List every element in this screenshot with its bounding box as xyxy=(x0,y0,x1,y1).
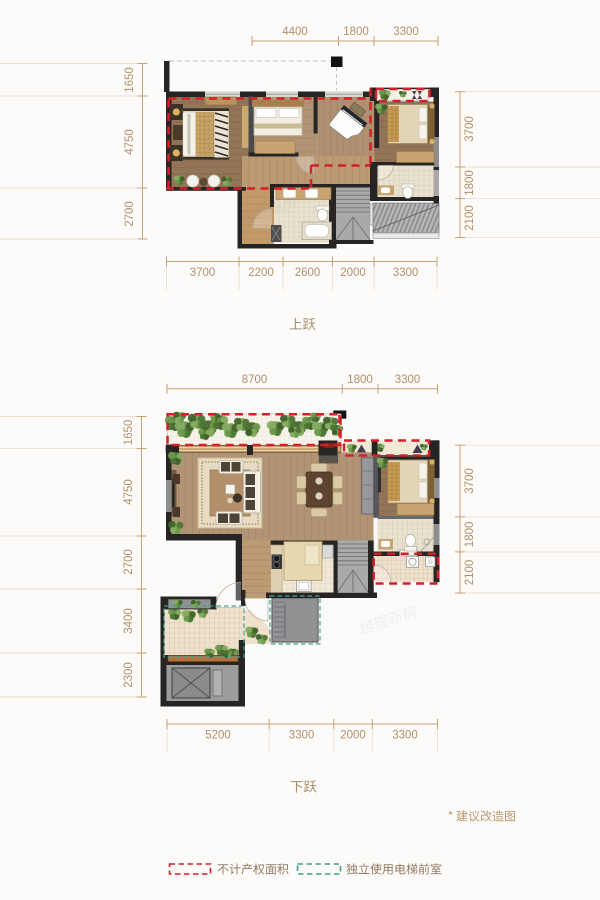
svg-text:4750: 4750 xyxy=(123,479,135,505)
svg-text:4400: 4400 xyxy=(282,26,308,38)
svg-text:3300: 3300 xyxy=(395,374,421,386)
svg-text:3300: 3300 xyxy=(289,730,315,742)
svg-text:8700: 8700 xyxy=(242,374,268,386)
svg-text:1800: 1800 xyxy=(347,374,373,386)
svg-text:2700: 2700 xyxy=(123,549,135,575)
svg-text:2000: 2000 xyxy=(340,730,366,742)
svg-text:4750: 4750 xyxy=(124,129,136,155)
svg-text:5200: 5200 xyxy=(205,730,231,742)
svg-text:1800: 1800 xyxy=(464,170,476,196)
svg-text:1650: 1650 xyxy=(124,67,136,93)
svg-text:3700: 3700 xyxy=(464,116,476,142)
svg-text:1650: 1650 xyxy=(123,420,135,446)
svg-text:2600: 2600 xyxy=(295,267,321,279)
svg-text:2100: 2100 xyxy=(464,205,476,231)
svg-text:2700: 2700 xyxy=(124,201,136,227)
svg-text:3300: 3300 xyxy=(392,730,418,742)
svg-text:2200: 2200 xyxy=(248,267,274,279)
svg-text:1800: 1800 xyxy=(343,26,369,38)
svg-text:2300: 2300 xyxy=(123,662,135,688)
svg-text:1800: 1800 xyxy=(464,522,476,548)
svg-text:3300: 3300 xyxy=(393,26,419,38)
svg-text:3700: 3700 xyxy=(464,468,476,494)
svg-text:2100: 2100 xyxy=(464,560,476,586)
svg-text:3700: 3700 xyxy=(190,267,216,279)
svg-text:3300: 3300 xyxy=(393,267,419,279)
svg-text:3400: 3400 xyxy=(123,608,135,634)
svg-text:2000: 2000 xyxy=(340,267,366,279)
